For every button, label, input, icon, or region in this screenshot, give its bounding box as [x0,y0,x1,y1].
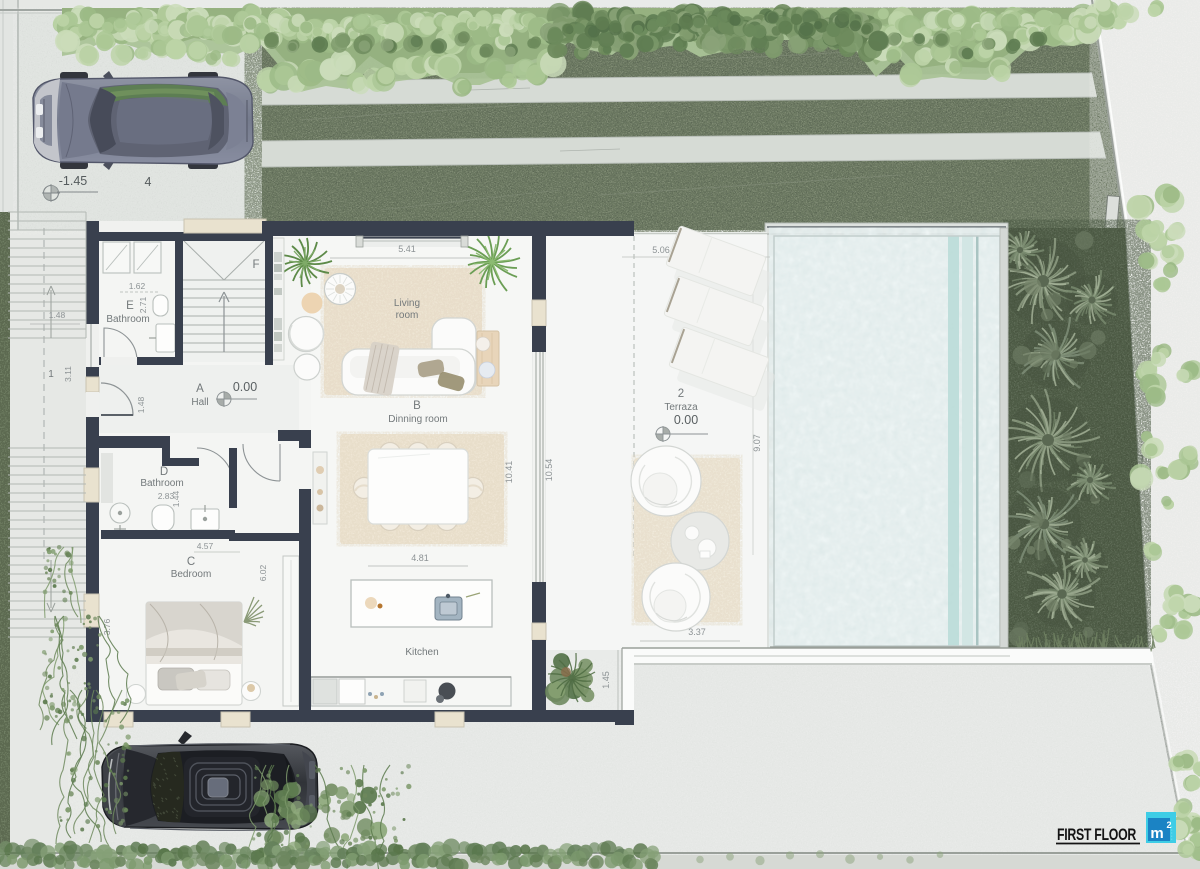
svg-text:Bathroom: Bathroom [140,478,183,489]
svg-text:-1.45: -1.45 [59,174,88,188]
svg-text:9.07: 9.07 [752,434,762,452]
svg-text:m: m [1150,825,1163,842]
svg-text:D: D [160,466,168,478]
svg-text:F: F [252,259,259,271]
svg-text:FIRST FLOOR: FIRST FLOOR [1057,825,1136,844]
svg-text:4.81: 4.81 [411,553,429,563]
svg-text:B: B [413,400,421,412]
svg-text:6.02: 6.02 [258,564,268,581]
svg-text:E: E [126,300,134,312]
svg-text:0.00: 0.00 [233,380,257,394]
svg-text:1: 1 [48,369,54,380]
svg-text:0.00: 0.00 [674,413,698,427]
svg-text:· · · · ·: · · · · · [1170,826,1176,840]
svg-text:3.11: 3.11 [63,366,73,382]
svg-text:Hall: Hall [191,397,208,408]
svg-text:2.71: 2.71 [138,296,148,313]
svg-text:Living: Living [394,298,420,309]
svg-text:10.54: 10.54 [544,459,554,482]
svg-text:4.57: 4.57 [197,541,214,551]
svg-text:C: C [187,556,195,568]
svg-text:4: 4 [145,175,152,189]
svg-text:1.44: 1.44 [171,490,181,507]
svg-text:3.37: 3.37 [688,627,706,637]
svg-text:Bathroom: Bathroom [106,314,149,325]
svg-text:5.06: 5.06 [652,245,670,255]
svg-text:Kitchen: Kitchen [405,647,438,658]
svg-text:5.41: 5.41 [398,244,416,254]
svg-text:Terraza: Terraza [664,402,698,413]
svg-text:A: A [196,383,204,395]
svg-text:1.45: 1.45 [601,671,611,689]
svg-text:room: room [396,310,419,321]
svg-text:1.62: 1.62 [129,281,146,291]
svg-text:2: 2 [678,388,684,400]
svg-text:Dinning room: Dinning room [388,414,447,425]
svg-text:Bedroom: Bedroom [171,569,212,580]
svg-text:10.41: 10.41 [504,461,514,484]
svg-text:1.48: 1.48 [136,396,146,413]
svg-text:1.48: 1.48 [49,310,66,320]
